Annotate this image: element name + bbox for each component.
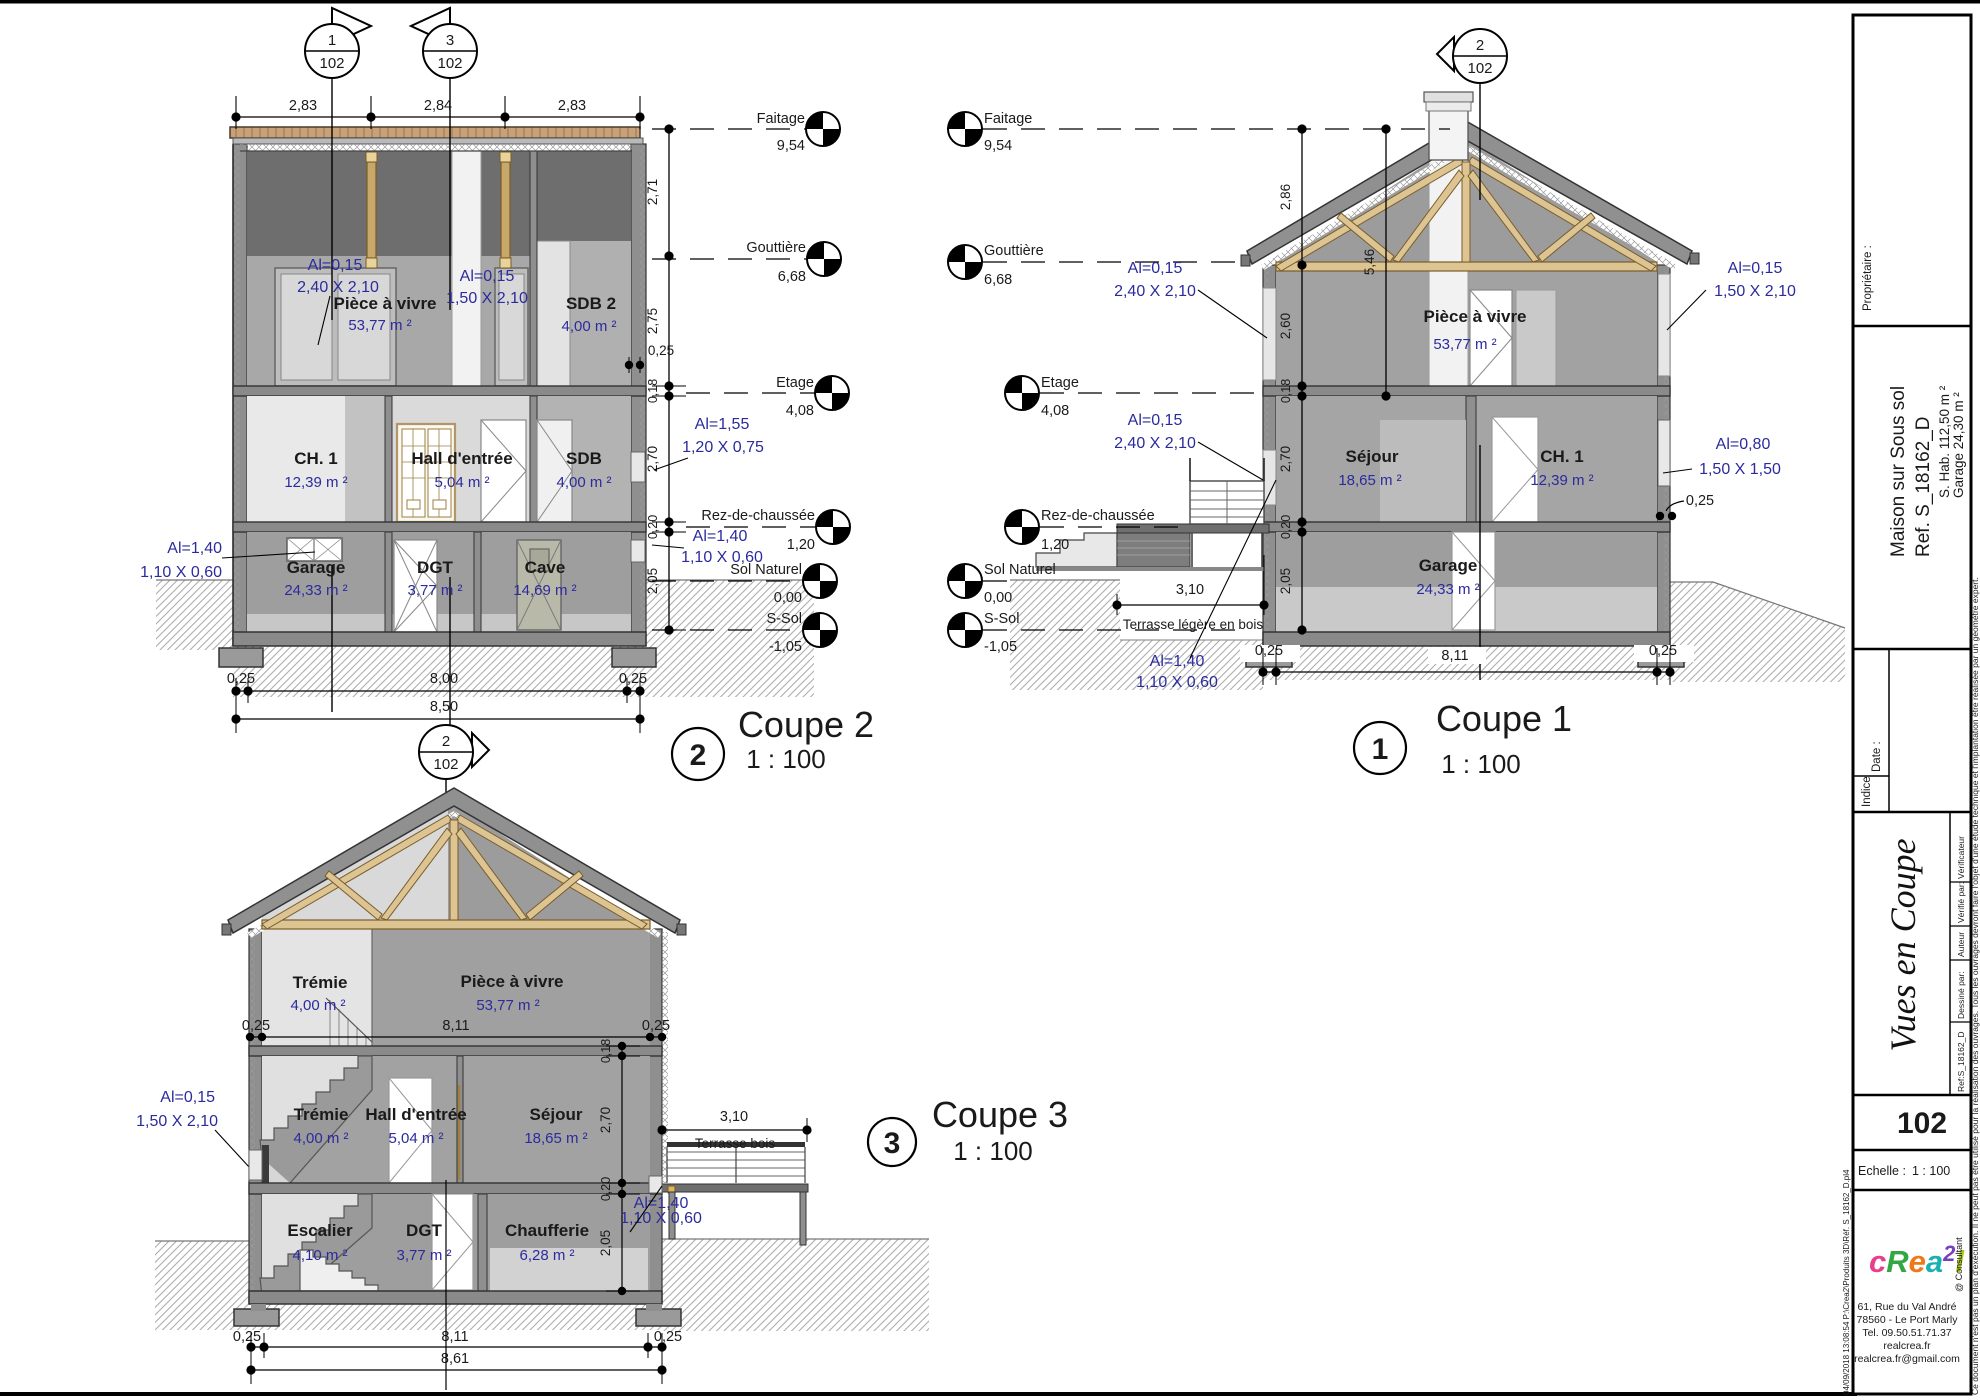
svg-text:Chaufferie: Chaufferie <box>505 1221 589 1240</box>
svg-text:5,04 m ²: 5,04 m ² <box>388 1130 443 1147</box>
svg-text:Gouttière: Gouttière <box>984 243 1044 259</box>
svg-text:4,08: 4,08 <box>786 403 814 419</box>
svg-text:8,50: 8,50 <box>430 699 458 715</box>
svg-text:0,25: 0,25 <box>1686 493 1714 509</box>
svg-text:2,05: 2,05 <box>1278 568 1293 594</box>
svg-text:102: 102 <box>433 756 458 773</box>
svg-text:3: 3 <box>446 32 454 49</box>
svg-text:realcrea.fr: realcrea.fr <box>1883 1340 1931 1352</box>
svg-text:8,00: 8,00 <box>430 671 458 687</box>
svg-text:CH. 1: CH. 1 <box>294 449 337 468</box>
svg-text:2,75: 2,75 <box>645 308 660 334</box>
svg-text:Garage: Garage <box>287 558 346 577</box>
svg-text:Indice: Indice <box>1861 776 1873 807</box>
svg-text:0,00: 0,00 <box>984 590 1012 606</box>
svg-text:Coupe 3: Coupe 3 <box>932 1094 1068 1135</box>
svg-text:2,86: 2,86 <box>1278 184 1293 210</box>
svg-text:0,25: 0,25 <box>619 671 647 687</box>
svg-text:0,00: 0,00 <box>774 590 802 606</box>
svg-text:6,28 m ²: 6,28 m ² <box>519 1247 574 1264</box>
svg-text:18,65 m ²: 18,65 m ² <box>1338 472 1401 489</box>
svg-text:53,77 m ²: 53,77 m ² <box>1433 336 1496 353</box>
svg-text:Al=0,15: Al=0,15 <box>1128 260 1183 277</box>
svg-text:Al=1,40: Al=1,40 <box>693 528 748 545</box>
svg-text:3,10: 3,10 <box>1176 582 1204 598</box>
svg-text:24,33 m ²: 24,33 m ² <box>284 582 347 599</box>
svg-text:Vérifié par:: Vérifié par: <box>1956 882 1966 923</box>
svg-text:1,10 X 0,60: 1,10 X 0,60 <box>1136 674 1218 691</box>
svg-text:Echelle :: Echelle : <box>1858 1164 1906 1178</box>
svg-text:9,54: 9,54 <box>984 138 1012 154</box>
svg-text:1,20 X 0,75: 1,20 X 0,75 <box>682 439 764 456</box>
svg-text:1,50 X 1,50: 1,50 X 1,50 <box>1699 461 1781 478</box>
svg-text:Propriétaire :: Propriétaire : <box>1862 245 1874 311</box>
svg-text:0,25: 0,25 <box>227 671 255 687</box>
svg-text:4,00 m ²: 4,00 m ² <box>293 1130 348 1147</box>
svg-text:0,20: 0,20 <box>646 515 660 539</box>
svg-text:1,10 X 0,60: 1,10 X 0,60 <box>620 1210 702 1227</box>
svg-text:2,83: 2,83 <box>289 98 317 114</box>
svg-text:2,40 X 2,10: 2,40 X 2,10 <box>1114 283 1196 300</box>
svg-text:6,68: 6,68 <box>984 272 1012 288</box>
svg-text:1,50 X 2,10: 1,50 X 2,10 <box>446 290 528 307</box>
svg-text:@ Consultant: @ Consultant <box>1954 1237 1964 1292</box>
svg-text:Ce document n'est pas un plan: Ce document n'est pas un plan d'exécutio… <box>1970 577 1980 1395</box>
svg-text:1 : 100: 1 : 100 <box>1912 1164 1950 1178</box>
svg-text:Vérificateur: Vérificateur <box>1956 836 1966 879</box>
svg-text:0,25: 0,25 <box>1649 643 1677 659</box>
svg-text:Pièce à vivre: Pièce à vivre <box>1423 307 1526 326</box>
svg-text:Tel. 09.50.51.71.37: Tel. 09.50.51.71.37 <box>1862 1327 1951 1339</box>
svg-text:24,33 m ²: 24,33 m ² <box>1416 581 1479 598</box>
svg-text:Al=1,40: Al=1,40 <box>167 540 222 557</box>
svg-text:Etage: Etage <box>776 375 814 391</box>
svg-text:Etage: Etage <box>1041 375 1079 391</box>
svg-text:1 : 100: 1 : 100 <box>1441 749 1521 779</box>
svg-text:Escalier: Escalier <box>287 1221 353 1240</box>
svg-text:Faitage: Faitage <box>757 111 805 127</box>
svg-text:2: 2 <box>690 739 707 772</box>
svg-text:4,00 m ²: 4,00 m ² <box>561 318 616 335</box>
svg-text:S-Sol: S-Sol <box>984 611 1019 627</box>
svg-text:3,77 m ²: 3,77 m ² <box>396 1247 451 1264</box>
svg-text:12,39 m ²: 12,39 m ² <box>284 474 347 491</box>
svg-text:5,46: 5,46 <box>1362 249 1377 275</box>
svg-text:CH. 1: CH. 1 <box>1540 447 1583 466</box>
svg-text:8,11: 8,11 <box>1441 648 1468 664</box>
svg-text:4,08: 4,08 <box>1041 403 1069 419</box>
svg-text:Pièce à vivre: Pièce à vivre <box>333 294 436 313</box>
svg-text:Al=1,55: Al=1,55 <box>695 416 750 433</box>
svg-text:2,71: 2,71 <box>645 179 660 205</box>
svg-text:2,83: 2,83 <box>558 98 586 114</box>
svg-text:78560 - Le Port Marly: 78560 - Le Port Marly <box>1857 1314 1959 1326</box>
svg-text:Maison sur Sous sol: Maison sur Sous sol <box>1888 386 1909 557</box>
svg-text:2,84: 2,84 <box>424 98 452 114</box>
svg-text:DGT: DGT <box>406 1221 443 1240</box>
svg-text:Terrasse légère en bois: Terrasse légère en bois <box>1123 617 1264 632</box>
svg-text:Séjour: Séjour <box>1346 447 1399 466</box>
svg-text:Date :: Date : <box>1871 741 1883 772</box>
svg-text:0,18: 0,18 <box>646 379 660 403</box>
svg-text:Vues en Coupe: Vues en Coupe <box>1883 838 1923 1051</box>
svg-text:1,10 X 0,60: 1,10 X 0,60 <box>681 549 763 566</box>
svg-text:1,10 X 0,60: 1,10 X 0,60 <box>140 564 222 581</box>
svg-text:12,39 m ²: 12,39 m ² <box>1530 472 1593 489</box>
svg-text:Coupe 1: Coupe 1 <box>1436 698 1572 739</box>
svg-text:DGT: DGT <box>417 558 454 577</box>
svg-text:Al=0,80: Al=0,80 <box>1716 436 1771 453</box>
svg-text:0,25: 0,25 <box>642 1018 670 1034</box>
svg-text:6,68: 6,68 <box>778 269 806 285</box>
svg-text:S-Sol: S-Sol <box>767 611 802 627</box>
svg-text:102: 102 <box>1467 60 1492 77</box>
svg-text:Al=0,15: Al=0,15 <box>160 1089 215 1106</box>
svg-text:-1,05: -1,05 <box>769 639 802 655</box>
svg-text:Auteur: Auteur <box>1956 932 1966 957</box>
svg-text:Garage 24,30 m ²: Garage 24,30 m ² <box>1951 392 1966 498</box>
svg-text:8,61: 8,61 <box>441 1351 469 1367</box>
svg-text:-1,05: -1,05 <box>984 639 1017 655</box>
svg-text:Cave: Cave <box>525 558 566 577</box>
svg-text:0,25: 0,25 <box>242 1018 270 1034</box>
svg-text:9,54: 9,54 <box>777 138 805 154</box>
svg-text:0,25: 0,25 <box>1255 643 1283 659</box>
svg-text:Rez-de-chaussée: Rez-de-chaussée <box>1041 508 1155 524</box>
svg-text:3,10: 3,10 <box>720 1109 748 1125</box>
svg-text:2,70: 2,70 <box>1278 446 1293 472</box>
svg-text:5,04 m ²: 5,04 m ² <box>434 474 489 491</box>
svg-text:04/09/2018 13:08:54 P:\Crea2\: 04/09/2018 13:08:54 P:\Crea2\Produits 3D… <box>1842 1169 1851 1395</box>
svg-text:2,70: 2,70 <box>598 1107 613 1133</box>
svg-text:0,18: 0,18 <box>599 1039 613 1063</box>
svg-text:Al=0,15: Al=0,15 <box>460 268 515 285</box>
svg-text:1,50 X 2,10: 1,50 X 2,10 <box>136 1113 218 1130</box>
svg-text:Hall d'entrée: Hall d'entrée <box>365 1105 466 1124</box>
svg-text:61, Rue du Val André: 61, Rue du Val André <box>1857 1301 1956 1313</box>
svg-text:8,11: 8,11 <box>442 1018 469 1034</box>
svg-text:102: 102 <box>319 55 344 72</box>
svg-text:102: 102 <box>437 55 462 72</box>
svg-text:1,50 X 2,10: 1,50 X 2,10 <box>1714 283 1796 300</box>
svg-text:0,20: 0,20 <box>599 1177 613 1201</box>
svg-text:Coupe 2: Coupe 2 <box>738 704 874 745</box>
svg-text:4,00 m ²: 4,00 m ² <box>290 997 345 1014</box>
svg-text:Rez-de-chaussée: Rez-de-chaussée <box>701 508 815 524</box>
svg-text:Terrasse bois: Terrasse bois <box>695 1136 776 1151</box>
svg-text:Ref. S_18162_D: Ref. S_18162_D <box>1913 417 1934 558</box>
svg-text:0,20: 0,20 <box>1279 515 1293 539</box>
svg-text:Pièce à vivre: Pièce à vivre <box>460 972 563 991</box>
svg-text:Faitage: Faitage <box>984 111 1032 127</box>
svg-text:1,20: 1,20 <box>787 537 815 553</box>
svg-text:SDB: SDB <box>566 449 602 468</box>
svg-text:Dessiné par:: Dessiné par: <box>1956 971 1966 1019</box>
svg-text:18,65 m ²: 18,65 m ² <box>524 1130 587 1147</box>
svg-text:S. Hab. 112,50 m ²: S. Hab. 112,50 m ² <box>1937 385 1952 498</box>
svg-text:1: 1 <box>1372 733 1389 766</box>
svg-text:Garage: Garage <box>1419 556 1478 575</box>
svg-text:3,77 m ²: 3,77 m ² <box>407 582 462 599</box>
svg-text:Hall d'entrée: Hall d'entrée <box>411 449 512 468</box>
svg-text:0,18: 0,18 <box>1279 379 1293 403</box>
svg-text:102: 102 <box>1897 1107 1947 1140</box>
svg-text:0,25: 0,25 <box>654 1329 682 1345</box>
svg-text:4,10 m ²: 4,10 m ² <box>292 1247 347 1264</box>
svg-text:Trémie: Trémie <box>294 1105 349 1124</box>
svg-text:Al=0,15: Al=0,15 <box>1728 260 1783 277</box>
svg-text:Trémie: Trémie <box>293 973 348 992</box>
svg-text:2,40 X 2,10: 2,40 X 2,10 <box>1114 435 1196 452</box>
svg-text:2: 2 <box>1476 37 1484 54</box>
svg-text:3: 3 <box>884 1127 901 1160</box>
svg-text:Sol Naturel: Sol Naturel <box>984 562 1056 578</box>
svg-text:2: 2 <box>442 733 450 750</box>
svg-text:53,77 m ²: 53,77 m ² <box>348 317 411 334</box>
svg-text:0,25: 0,25 <box>233 1329 261 1345</box>
svg-text:1 : 100: 1 : 100 <box>953 1136 1033 1166</box>
svg-text:Al=1,40: Al=1,40 <box>1150 653 1205 670</box>
svg-text:1 : 100: 1 : 100 <box>746 744 826 774</box>
svg-text:1,20: 1,20 <box>1041 537 1069 553</box>
svg-text:2,05: 2,05 <box>598 1230 613 1256</box>
svg-text:Gouttière: Gouttière <box>746 240 806 256</box>
svg-text:2,60: 2,60 <box>1278 313 1293 339</box>
svg-text:53,77 m ²: 53,77 m ² <box>476 997 539 1014</box>
svg-text:4,00 m ²: 4,00 m ² <box>556 474 611 491</box>
svg-text:Ref:S_18162_D: Ref:S_18162_D <box>1956 1032 1966 1093</box>
svg-text:SDB 2: SDB 2 <box>566 294 616 313</box>
svg-text:14,69 m ²: 14,69 m ² <box>513 582 576 599</box>
svg-text:realcrea.fr@gmail.com: realcrea.fr@gmail.com <box>1854 1353 1960 1365</box>
svg-text:Séjour: Séjour <box>530 1105 583 1124</box>
svg-text:Al=0,15: Al=0,15 <box>1128 412 1183 429</box>
svg-text:1: 1 <box>328 32 336 49</box>
svg-text:Al=0,15: Al=0,15 <box>308 257 363 274</box>
svg-text:0,25: 0,25 <box>648 343 674 358</box>
